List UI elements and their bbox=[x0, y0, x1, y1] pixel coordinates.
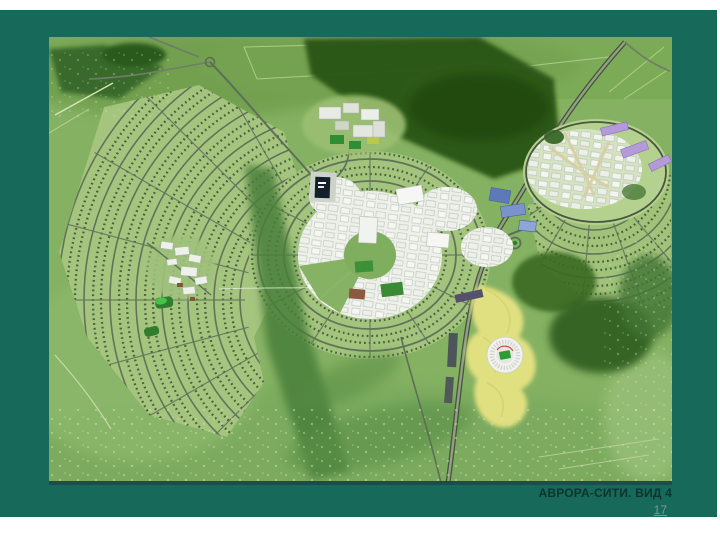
parking-strip bbox=[447, 333, 458, 367]
image-caption: АВРОРА-СИТИ. ВИД 4 bbox=[539, 486, 673, 500]
slide-background: АВРОРА-СИТИ. ВИД 4 17 bbox=[0, 10, 717, 517]
image-bottom-edge bbox=[49, 481, 672, 485]
landmark-tower bbox=[309, 171, 337, 202]
industrial-cluster bbox=[302, 95, 406, 155]
masterplan-image bbox=[49, 37, 672, 485]
masterplan-aerial-render bbox=[49, 37, 672, 485]
page-number: 17 bbox=[654, 503, 667, 517]
